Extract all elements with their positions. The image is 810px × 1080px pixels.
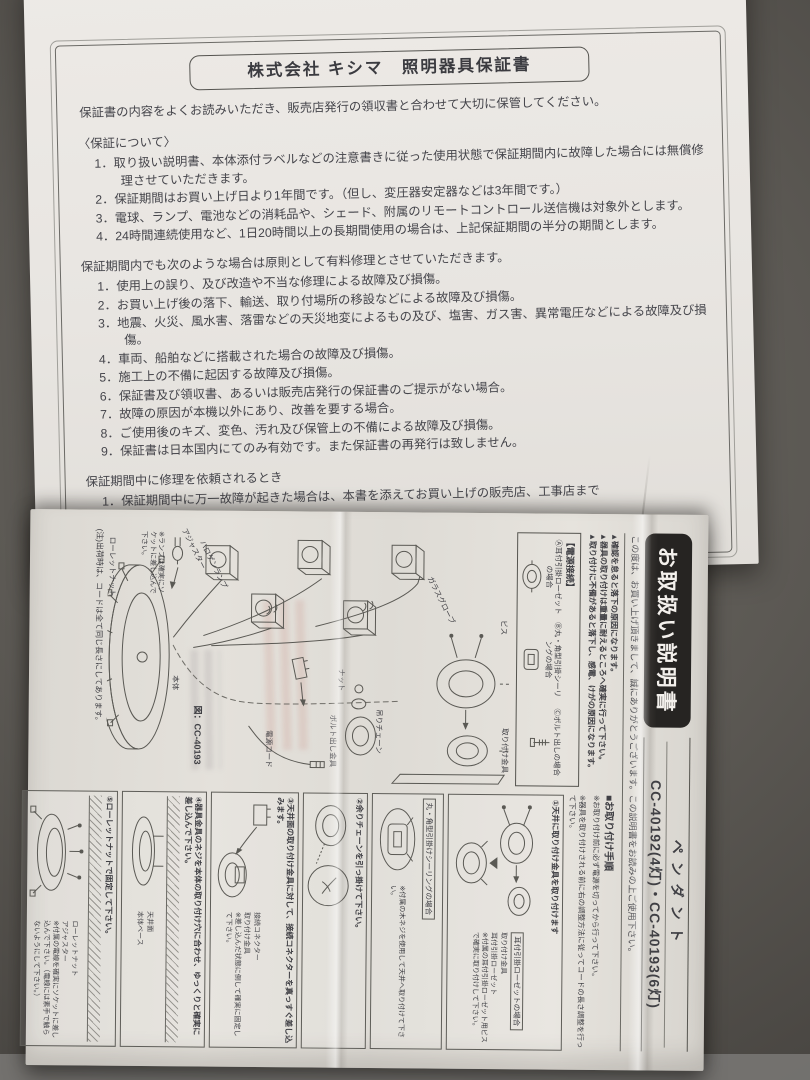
exploded-diagram: ビス 取り付け金具 ガラスグローブ 吊りチェーン ナット ボルト出し金具 電源コ…: [106, 529, 512, 787]
ceiling-cap-icon: [519, 636, 543, 682]
manual-sheet: お取扱い説明書 ペンダント CC-40192(4灯)・CC-40193(6灯) …: [26, 509, 709, 1071]
power-option-label: Ⓒボルト出しの場合: [553, 709, 563, 777]
power-option-label: Ⓐ耳付引掛ローゼットの場合: [545, 539, 563, 614]
step-title: ②余りチェーンを引っ掛けて下さい。: [352, 798, 365, 1044]
power-option-label: Ⓑ丸・角型引掛シーリングの場合: [544, 622, 562, 697]
step-title: ⑤ローレットナットで固定して下さい。: [102, 796, 115, 1042]
part-label: 耳付引掛ローゼット: [488, 932, 499, 1045]
part-label: 本体ベース: [134, 911, 145, 1042]
step3-diagram: [306, 797, 353, 917]
step-panel-4: ③天井面の取り付け金具に対して、接続コネクターを真っすぐ差し込みます。 接続コネ…: [209, 792, 299, 1049]
part-label: 接続コネクター: [251, 912, 262, 1043]
step-variant: 耳付引掛ローゼットの場合: [510, 932, 524, 1030]
diagram-label-bracket: 取り付け金具: [500, 728, 511, 773]
part-label: 天井面: [144, 911, 155, 1042]
step1-diagram: [451, 799, 548, 928]
warning-line: ▲確認を怠ると落下の原因になります。: [607, 533, 620, 787]
part-label: 取り付け金具: [498, 932, 509, 1045]
step-panel-6: ⑤ローレットナットで固定して下さい。 ローレットナット: [20, 790, 119, 1047]
step-panel-5: ④器具金具のネジを本体の取り付け穴に合わせ、ゆっくりと確実に差し込んで下さい。 …: [120, 791, 207, 1048]
manual-header-right: ペンダント CC-40192(4灯)・CC-40193(6灯): [641, 737, 691, 1051]
diagram-label-body: 本体: [170, 675, 181, 690]
warranty-paid-list: 1．使用上の誤り、及び改造や不当な修理による故障及び損傷。 2．お買い上げ後の落…: [81, 265, 711, 462]
step2-diagram: [376, 798, 421, 880]
diagram-label-bolt-fitting: ボルト出し金具: [328, 715, 339, 768]
power-connection-box: 【電源接続】 Ⓐ耳付引掛ローゼットの場合 Ⓑ丸・角型引掛シーリングの場合: [515, 532, 581, 787]
product-name: ペンダント: [664, 742, 689, 1048]
warranty-title: 株式会社 キシマ 照明器具保証書: [189, 46, 590, 91]
part-label: アジャスター: [58, 920, 69, 1041]
bolt-icon: [528, 719, 552, 765]
step6-diagram: [25, 795, 88, 916]
warranty-frame: 株式会社 キシマ 照明器具保証書 保証書の内容をよくお読みいただき、販売店発行の…: [55, 30, 733, 567]
shipping-note: (注)出荷時は、コードは全て同じ長さにしてあります。: [92, 529, 105, 783]
step-title: ④器具金具のネジを本体の取り付け穴に合わせ、ゆっくりと確実に差し込んで下さい。: [180, 796, 203, 1042]
step-panel-1: ①天井に取り付け金具を取り付けます: [446, 794, 564, 1051]
step-variant: 丸・角型引掛けシーリングの場合: [422, 798, 436, 919]
warning-line: ▲取り付けに不備があると落下し、感電、けがの原因になります。: [584, 533, 597, 787]
steps-note: ※お取り付け前に必ず電源を切ってから行って下さい。: [589, 795, 601, 1051]
manual-rotated-content: お取扱い説明書 ペンダント CC-40192(4灯)・CC-40193(6灯) …: [32, 512, 701, 1066]
rosette-with-ears-icon: [520, 554, 544, 600]
manual-title-badge: お取扱い説明書: [644, 533, 693, 727]
exploded-diagram-svg: [106, 529, 512, 787]
step5-diagram: [125, 796, 166, 906]
warranty-intro: 保証書の内容をよくお読みいただき、販売店発行の領収書と合わせて大切に保管してくだ…: [79, 91, 701, 123]
power-option-a: Ⓐ耳付引掛ローゼットの場合: [520, 537, 564, 616]
step-title: ①天井に取り付け金具を取り付けます: [547, 800, 560, 1046]
ceiling-hatch: [165, 796, 180, 1042]
step4-diagram: [214, 797, 273, 908]
power-option-c: Ⓒボルト出しの場合: [519, 703, 563, 782]
step-note: ※付属の電線を確実にソケットに差し込んで下さい。（電線には素手で触らないようにし…: [31, 920, 59, 1041]
model-numbers: CC-40192(4灯)・CC-40193(6灯): [644, 741, 667, 1047]
step-panel-3: ②余りチェーンを引っ掛けて下さい。: [301, 792, 369, 1049]
diagram-label-knurled-nut: ローレットナット: [107, 537, 119, 597]
step-note: ※差し込んだ状態に倒して確実に固定して下さい。: [223, 912, 242, 1043]
manual-left-column: ▲確認を怠ると落下の原因になります。 ▲器具の取り付けは重量に耐えるところへ確実…: [18, 528, 620, 787]
diagram-label-chain: 吊りチェーン: [374, 709, 385, 754]
part-label: ローレットナット: [68, 920, 79, 1041]
warranty-sheet: 株式会社 キシマ 照明器具保証書 保証書の内容をよくお読みいただき、販売店発行の…: [23, 0, 758, 580]
warning-line: ▲器具の取り付けは重量に耐えるところへ確実に行って下さい。: [596, 533, 609, 787]
power-connection-heading: 【電源接続】: [563, 538, 578, 782]
diagram-label-cord: 電源コード: [264, 730, 275, 768]
figure-caption: 図：CC-40193: [192, 705, 206, 764]
part-label: 取り付け金具: [241, 912, 252, 1043]
steps-note: ※器具を取り付けされる前に右の調整方法に従ってコードの長さ調整を行って下さい。: [565, 795, 587, 1051]
diagram-label-nut: ナット: [336, 669, 347, 692]
power-option-b: Ⓑ丸・角型引掛シーリングの場合: [519, 620, 563, 699]
diagram-lamp-note: ※ランプは確実にソケットに差し込んで下さい。: [138, 531, 165, 597]
step-note: ※付属の耳付引掛ローゼット用ビスで確実に取り付けして下さい。: [470, 932, 489, 1045]
manual-right-column: ■お取り付け手順 ※お取り付け前に必ず電源を切ってから行って下さい。 ※器具を取…: [16, 790, 618, 1051]
steps-heading: ■お取り付け手順: [601, 795, 618, 1051]
diagram-label-screw: ビス: [499, 620, 510, 635]
ceiling-hatch: [87, 796, 102, 1042]
step-title: ③天井面の取り付け金具に対して、接続コネクターを真っすぐ差し込みます。: [272, 797, 295, 1043]
step-note: ※付属の木ネジを使用して天井へ取り付けて下さい。: [387, 885, 407, 1044]
warranty-about-list: 1．取り扱い説明書、本体添付ラベルなどの注意書きに従った使用状態で保証期間内に故…: [78, 142, 706, 246]
step-panel-2: 丸・角型引掛けシーリングの場合 ※付属の木ネジを使用して天井へ取り付けて下さい。: [370, 793, 444, 1050]
manual-header: お取扱い説明書 ペンダント CC-40192(4灯)・CC-40193(6灯): [641, 533, 693, 1051]
